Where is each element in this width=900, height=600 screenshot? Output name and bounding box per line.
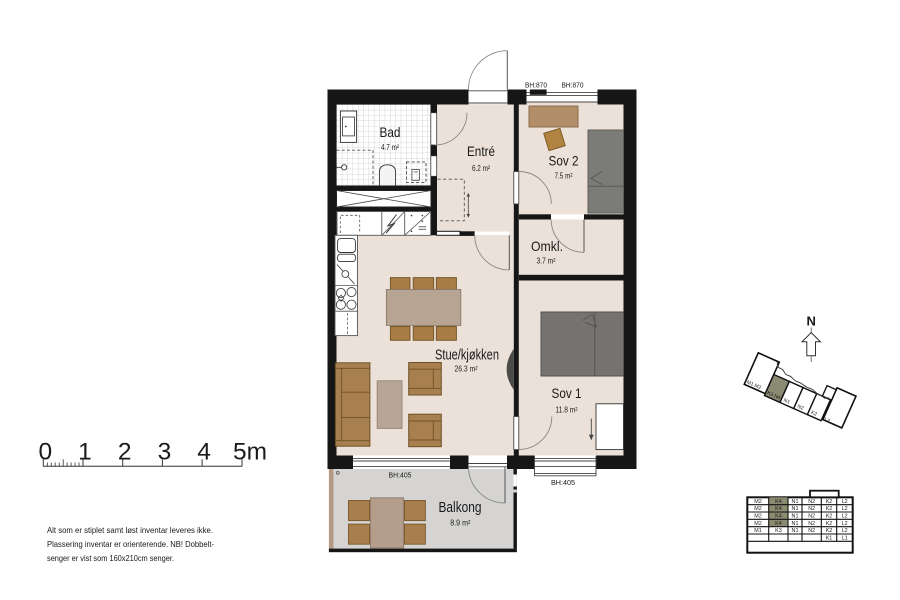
svg-text:N2: N2: [808, 528, 815, 534]
svg-text:N1: N1: [792, 499, 799, 505]
svg-text:Entré: Entré: [467, 143, 495, 159]
svg-text:1: 1: [78, 439, 92, 466]
svg-text:11.8 m²: 11.8 m²: [556, 406, 578, 415]
svg-text:M2: M2: [754, 499, 762, 505]
svg-text:N: N: [807, 314, 816, 329]
svg-text:M2: M2: [754, 506, 762, 512]
svg-text:Alt som er stiplet samt løst i: Alt som er stiplet samt løst inventar le…: [47, 525, 213, 535]
svg-text:M1: M1: [754, 528, 762, 534]
svg-text:Bad: Bad: [380, 124, 401, 140]
svg-text:L2: L2: [842, 499, 848, 505]
svg-text:K4: K4: [775, 506, 782, 512]
svg-text:K2: K2: [826, 514, 833, 520]
svg-text:4: 4: [197, 439, 211, 466]
svg-text:N1: N1: [792, 506, 799, 512]
svg-text:N2: N2: [808, 506, 815, 512]
svg-text:Omkl.: Omkl.: [531, 238, 563, 254]
svg-text:Plassering inventar er oriente: Plassering inventar er orienterende. NB!…: [47, 539, 214, 549]
svg-text:5m: 5m: [233, 439, 267, 466]
svg-text:K4: K4: [775, 499, 782, 505]
svg-text:26.3 m²: 26.3 m²: [455, 365, 478, 374]
svg-text:K2: K2: [826, 499, 833, 505]
svg-text:3.7 m²: 3.7 m²: [537, 257, 556, 266]
svg-text:K3: K3: [775, 528, 782, 534]
svg-text:L2: L2: [842, 506, 848, 512]
svg-text:N1: N1: [792, 521, 799, 527]
svg-text:3: 3: [158, 439, 172, 466]
svg-text:N1: N1: [792, 528, 799, 534]
svg-text:K1: K1: [826, 536, 833, 542]
svg-text:K2: K2: [826, 528, 833, 534]
svg-text:BH:405: BH:405: [389, 471, 412, 480]
svg-text:M2: M2: [754, 521, 762, 527]
svg-text:4.7 m²: 4.7 m²: [381, 143, 399, 152]
svg-text:BH:405: BH:405: [551, 478, 575, 487]
svg-text:BH:870: BH:870: [562, 81, 584, 90]
svg-text:7.5 m²: 7.5 m²: [555, 172, 573, 181]
svg-text:N2: N2: [808, 499, 815, 505]
svg-text:Stue/kjøkken: Stue/kjøkken: [435, 348, 499, 364]
svg-text:Balkong: Balkong: [439, 500, 482, 516]
svg-text:L1: L1: [842, 536, 848, 542]
svg-text:6.2 m²: 6.2 m²: [472, 164, 490, 173]
svg-text:N2: N2: [808, 521, 815, 527]
svg-text:2: 2: [118, 439, 132, 466]
svg-text:BH:870: BH:870: [525, 81, 547, 90]
svg-text:N2: N2: [808, 514, 815, 520]
svg-text:M2: M2: [754, 514, 762, 520]
svg-text:K2: K2: [826, 521, 833, 527]
svg-text:L2: L2: [842, 521, 848, 527]
svg-text:senger er vist som 160x210cm s: senger er vist som 160x210cm senger.: [47, 553, 174, 563]
svg-text:0: 0: [38, 439, 52, 466]
svg-text:K4: K4: [775, 514, 782, 520]
svg-text:K2: K2: [826, 506, 833, 512]
svg-text:Sov 2: Sov 2: [549, 153, 579, 169]
svg-text:K4: K4: [775, 521, 782, 527]
svg-text:L2: L2: [842, 528, 848, 534]
svg-text:L2: L2: [842, 514, 848, 520]
svg-text:Sov 1: Sov 1: [552, 385, 582, 401]
svg-text:8.9 m²: 8.9 m²: [450, 519, 470, 528]
svg-text:N1: N1: [792, 514, 799, 520]
